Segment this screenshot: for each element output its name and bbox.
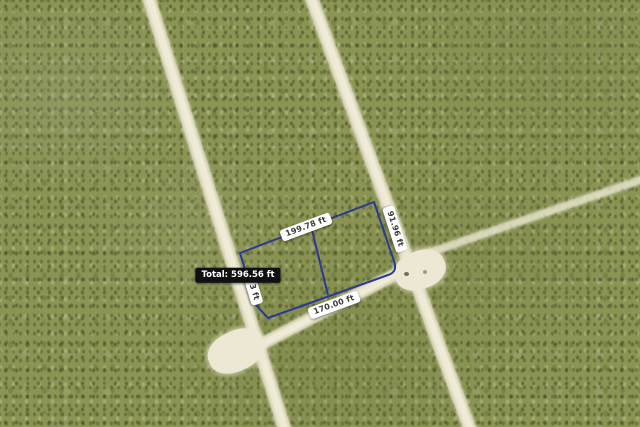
map-canvas[interactable]: 3 ft 199.78 ft 91.96 ft 170.00 ft Total:… [0,0,640,427]
measurement-total-label: Total: 596.56 ft [195,268,280,283]
ground-object-dot [423,270,427,274]
ground-object-dot [404,272,409,276]
